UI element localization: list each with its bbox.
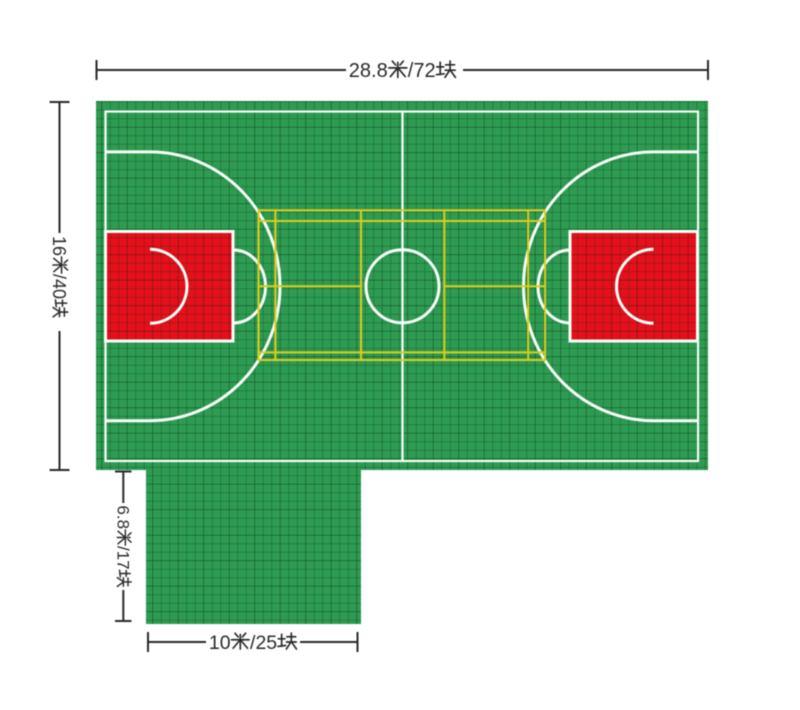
svg-text:/25: /25 bbox=[250, 632, 277, 654]
svg-text:10: 10 bbox=[209, 632, 231, 654]
svg-text:/17: /17 bbox=[113, 546, 132, 570]
svg-text:/40: /40 bbox=[49, 274, 69, 299]
svg-text:/72: /72 bbox=[408, 60, 436, 82]
svg-text:28.8: 28.8 bbox=[349, 60, 388, 82]
svg-text:16: 16 bbox=[49, 236, 69, 256]
svg-text:6.8: 6.8 bbox=[113, 505, 132, 529]
